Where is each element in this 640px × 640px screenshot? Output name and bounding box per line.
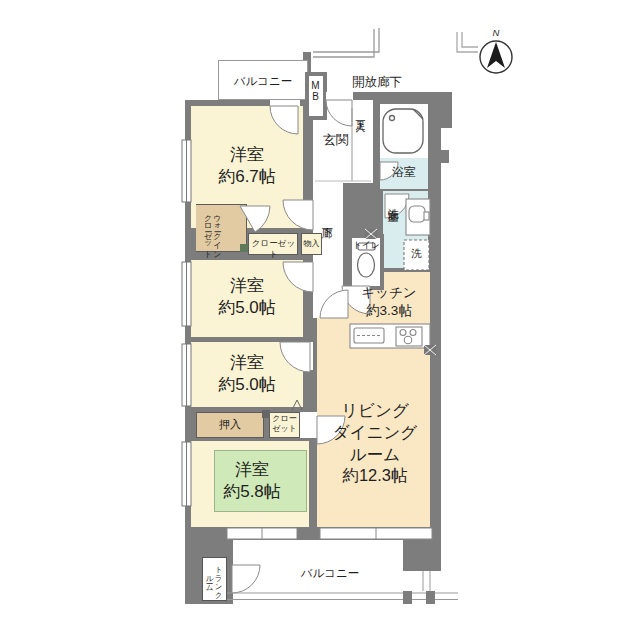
floorplan-canvas: バルコニー 開放廊下 MB 玄関 下足入 浴室 洗面室 洗 廊下 トイレ ウォー… bbox=[0, 0, 640, 640]
kitchen-extension-floor bbox=[317, 318, 348, 362]
bedroom2-door-gap bbox=[303, 262, 313, 290]
washroom-label: 洗面室 bbox=[386, 200, 400, 203]
walk-in-closet-label: ウォークイン クローゼット bbox=[203, 209, 221, 255]
shoe-box-label: 下足入 bbox=[354, 112, 367, 115]
washer-label: 洗 bbox=[405, 247, 428, 261]
bathtub-zone bbox=[380, 104, 428, 158]
pipe-lines bbox=[313, 28, 379, 57]
bedroom2-label: 洋室 約5.0帖 bbox=[191, 275, 303, 319]
right-wall-nub bbox=[441, 150, 449, 163]
oshiire-label: 押入 bbox=[196, 417, 264, 431]
bathroom-label: 浴室 bbox=[382, 165, 426, 181]
corner-mark-lines bbox=[457, 32, 478, 52]
kitchen-label: キッチン 約3.3帖 bbox=[348, 284, 430, 319]
hallway-label: 廊下 bbox=[320, 218, 334, 220]
balcony-corner-pillar bbox=[403, 540, 441, 571]
closet-top-label: クローゼット bbox=[249, 238, 298, 260]
closet-bottom-label: クロー ゼット bbox=[268, 414, 301, 434]
balcony-bottom-label: バルコニー bbox=[280, 566, 380, 581]
bedroom4-label: 洋室 約5.8帖 bbox=[196, 459, 308, 503]
entrance-label: 玄関 bbox=[317, 132, 355, 149]
bedroom4-door-pocket bbox=[300, 412, 317, 438]
north-compass-icon bbox=[480, 41, 512, 73]
balcony-door-gap bbox=[270, 100, 300, 106]
front-door-gap bbox=[326, 92, 353, 101]
open-corridor-label: 開放廊下 bbox=[338, 74, 416, 90]
meter-box-label: MB bbox=[309, 80, 322, 102]
bedroom3-door-gap bbox=[303, 342, 313, 370]
bedroom1-door-gap bbox=[303, 200, 313, 228]
bedroom1-label: 洋室 約6.7帖 bbox=[191, 144, 303, 188]
balcony-top-label: バルコニー bbox=[218, 74, 308, 89]
toilet-label: トイレ bbox=[351, 240, 382, 252]
trunk-room-label: トランク ルーム bbox=[205, 561, 223, 595]
storage-label: 物入 bbox=[300, 239, 323, 249]
north-label: N bbox=[490, 27, 502, 39]
bedroom3-label: 洋室 約5.0帖 bbox=[191, 352, 303, 396]
living-dining-label: リビング ダイニング ルーム 約12.3帖 bbox=[320, 400, 430, 487]
